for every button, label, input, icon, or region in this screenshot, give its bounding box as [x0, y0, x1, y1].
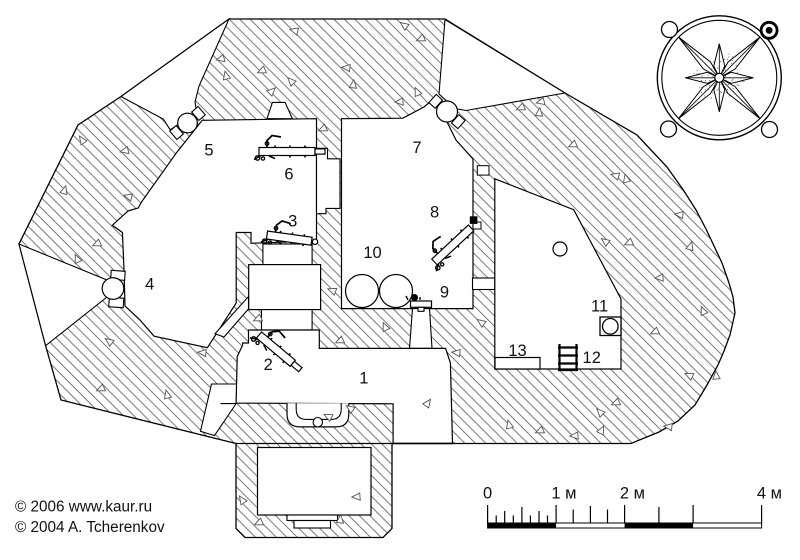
- svg-text:10: 10: [363, 244, 381, 262]
- svg-text:0: 0: [483, 485, 492, 503]
- svg-text:1 м: 1 м: [551, 485, 576, 503]
- svg-text:9: 9: [440, 283, 449, 301]
- svg-text:© 2004 A. Tcherenkov: © 2004 A. Tcherenkov: [15, 519, 165, 536]
- svg-text:2 м: 2 м: [620, 485, 645, 503]
- svg-text:6: 6: [284, 166, 293, 184]
- svg-text:4: 4: [145, 276, 154, 294]
- svg-text:12: 12: [583, 349, 601, 367]
- svg-text:© 2006 www.kaur.ru: © 2006 www.kaur.ru: [15, 499, 152, 516]
- svg-text:7: 7: [412, 139, 421, 157]
- svg-text:5: 5: [204, 142, 213, 160]
- svg-text:11: 11: [591, 298, 608, 316]
- svg-text:3: 3: [288, 213, 297, 231]
- svg-text:1: 1: [359, 370, 368, 388]
- svg-text:2: 2: [264, 356, 273, 374]
- svg-text:13: 13: [508, 342, 526, 360]
- svg-text:8: 8: [430, 204, 439, 222]
- svg-text:4 м: 4 м: [757, 485, 782, 503]
